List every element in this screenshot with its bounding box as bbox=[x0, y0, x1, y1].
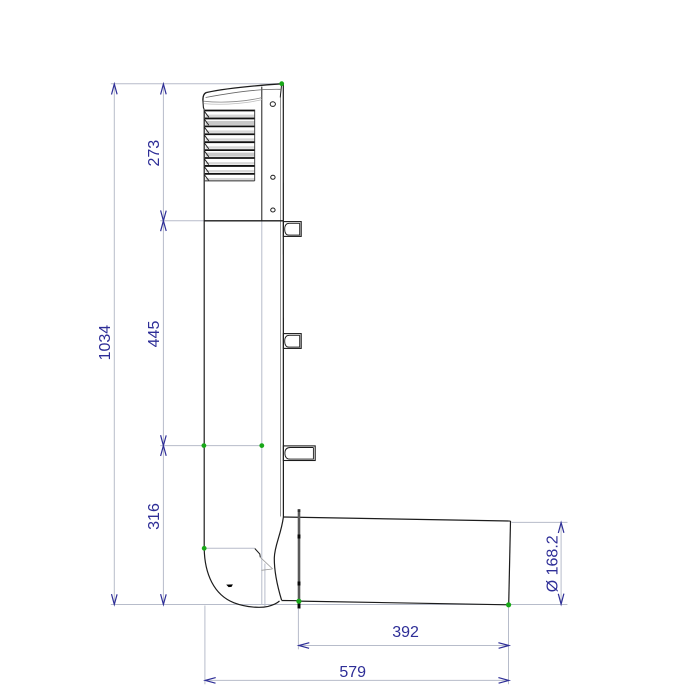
svg-text:273: 273 bbox=[146, 140, 163, 167]
svg-text:445: 445 bbox=[146, 321, 163, 348]
svg-text:579: 579 bbox=[339, 664, 366, 681]
svg-text:392: 392 bbox=[392, 624, 419, 641]
svg-text:Ø 168.2: Ø 168.2 bbox=[544, 535, 561, 592]
svg-text:316: 316 bbox=[146, 503, 163, 530]
svg-text:1034: 1034 bbox=[97, 325, 114, 361]
